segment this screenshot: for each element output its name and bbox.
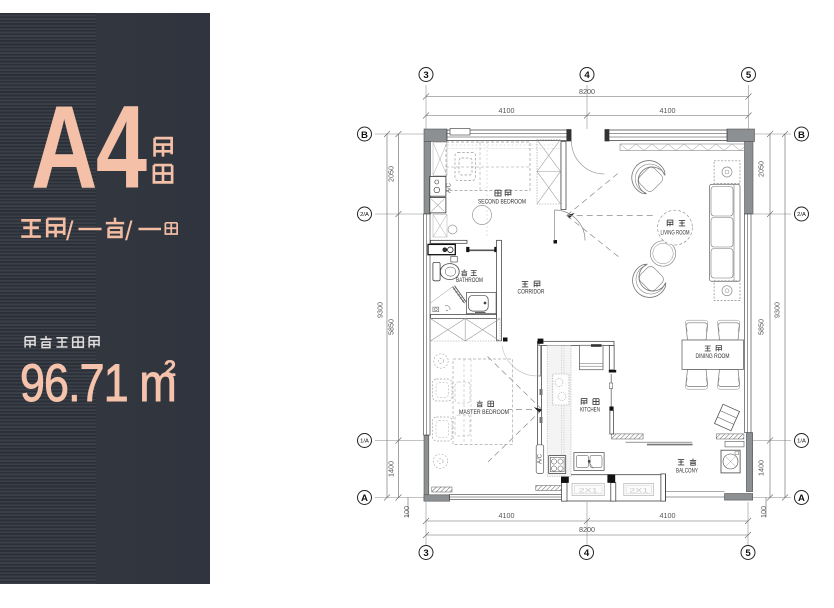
svg-text:2X1: 2X1 bbox=[629, 488, 649, 495]
svg-text:5: 5 bbox=[745, 548, 751, 559]
svg-text:A4: A4 bbox=[31, 82, 147, 214]
svg-text:9300: 9300 bbox=[376, 302, 385, 318]
svg-text:LIVING ROOM: LIVING ROOM bbox=[661, 230, 690, 237]
svg-text:3: 3 bbox=[423, 548, 428, 559]
svg-text:4: 4 bbox=[584, 548, 590, 559]
svg-text:100: 100 bbox=[402, 506, 411, 518]
svg-text:SECOND BEDROOM: SECOND BEDROOM bbox=[478, 199, 526, 206]
svg-text:2050: 2050 bbox=[387, 166, 396, 182]
svg-text:1400: 1400 bbox=[757, 460, 766, 476]
svg-text:B: B bbox=[798, 130, 805, 141]
svg-text:3: 3 bbox=[423, 70, 428, 81]
svg-text:8200: 8200 bbox=[579, 87, 595, 96]
svg-text:5850: 5850 bbox=[757, 319, 766, 335]
svg-text:4100: 4100 bbox=[499, 511, 515, 520]
svg-text:1400: 1400 bbox=[387, 461, 396, 477]
svg-text:4100: 4100 bbox=[660, 106, 676, 115]
svg-text:BATHROOM: BATHROOM bbox=[456, 277, 483, 284]
svg-text:BALCONY: BALCONY bbox=[676, 468, 699, 475]
svg-text:KITCHEN: KITCHEN bbox=[580, 407, 600, 414]
svg-text:8200: 8200 bbox=[579, 525, 595, 534]
svg-text:1/A: 1/A bbox=[360, 439, 369, 445]
svg-text:2050: 2050 bbox=[757, 161, 766, 177]
svg-text:A: A bbox=[361, 493, 368, 504]
svg-text:2: 2 bbox=[164, 355, 177, 381]
svg-text:2X1: 2X1 bbox=[579, 488, 599, 495]
svg-text:MASTER BEDROOM: MASTER BEDROOM bbox=[459, 409, 509, 416]
svg-text:A/C: A/C bbox=[447, 182, 453, 193]
svg-text:CORRIDOR: CORRIDOR bbox=[518, 289, 545, 296]
svg-text:9300: 9300 bbox=[773, 302, 782, 318]
svg-text:/: / bbox=[125, 216, 133, 246]
svg-text:2/A: 2/A bbox=[797, 212, 806, 218]
svg-text:B: B bbox=[361, 130, 368, 141]
svg-text:1/A: 1/A bbox=[797, 439, 806, 445]
svg-text:DINING ROOM: DINING ROOM bbox=[696, 353, 730, 360]
svg-text:/: / bbox=[66, 216, 74, 246]
svg-text:A/C: A/C bbox=[538, 453, 544, 464]
svg-text:5850: 5850 bbox=[387, 319, 396, 335]
svg-text:100: 100 bbox=[759, 506, 768, 518]
svg-text:2/A: 2/A bbox=[360, 212, 369, 218]
svg-text:4100: 4100 bbox=[660, 511, 676, 520]
svg-text:5: 5 bbox=[746, 70, 752, 81]
svg-text:A: A bbox=[798, 493, 805, 504]
svg-text:4100: 4100 bbox=[499, 106, 515, 115]
svg-text:4: 4 bbox=[584, 70, 590, 81]
svg-text:96.71 m: 96.71 m bbox=[20, 355, 176, 413]
